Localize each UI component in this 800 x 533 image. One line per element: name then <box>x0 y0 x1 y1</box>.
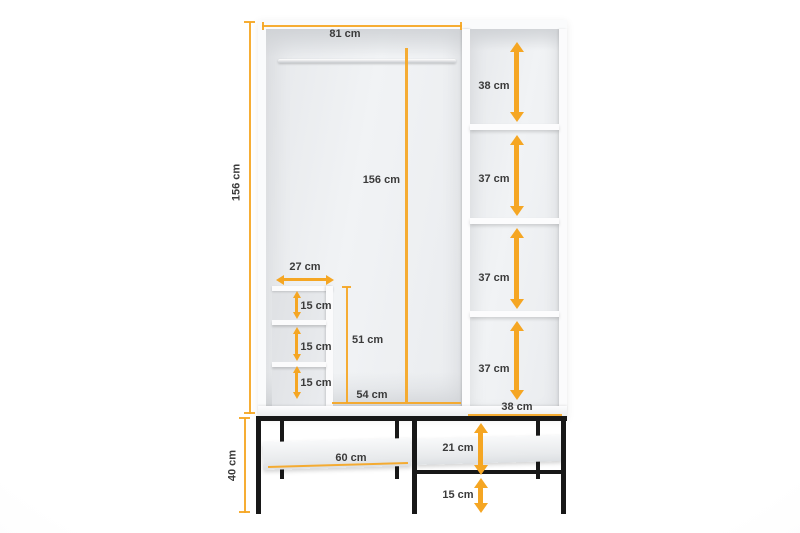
dim-cubby-height-tick-top <box>342 286 351 288</box>
shelf <box>470 218 559 224</box>
dim-floor-width-line <box>332 402 461 404</box>
dim-cubby-gap2-label: 15 cm <box>296 341 336 354</box>
dim-cubby-height-line <box>346 287 348 403</box>
dim-overall-height-label: 156 cm <box>231 152 244 214</box>
dim-right-gap3-label: 37 cm <box>471 272 517 285</box>
dim-interior-height-line <box>405 48 408 402</box>
dim-top-width-label: 81 cm <box>313 28 377 41</box>
center-divider-panel <box>462 29 470 408</box>
dim-top-width-tick-right <box>460 22 462 30</box>
dim-right-gap4-label: 37 cm <box>471 363 517 376</box>
shelf <box>470 311 559 317</box>
dim-overall-height-line <box>249 22 251 414</box>
dim-cubby-height-label: 51 cm <box>352 334 396 347</box>
dim-overall-height-tick-top <box>244 21 255 23</box>
base-crossbar <box>413 470 565 474</box>
dim-top-width-line <box>262 25 462 27</box>
dim-floor-width-label: 54 cm <box>349 389 395 402</box>
dim-base-height-line <box>244 418 246 513</box>
dim-right-col-width-line <box>468 414 562 416</box>
dim-right-gap1-label: 38 cm <box>471 80 517 93</box>
shelf <box>470 124 559 130</box>
dim-cubby-width-label: 27 cm <box>279 261 331 274</box>
dim-base-height-label: 40 cm <box>227 435 240 497</box>
dim-right-gap3-arrow <box>509 228 524 309</box>
dim-cubby-width-arrow <box>276 274 334 285</box>
dim-cubby-gap3-label: 15 cm <box>296 377 336 390</box>
cubby-shelf <box>272 320 326 325</box>
cubby-top-panel <box>272 286 333 291</box>
dim-right-gap2-label: 37 cm <box>471 173 517 186</box>
dim-right-gap4-arrow <box>509 321 524 400</box>
base-leg-front-middle <box>412 416 417 514</box>
dim-cubby-gap1-label: 15 cm <box>296 300 336 313</box>
dim-base-height-tick-top <box>239 417 250 419</box>
dim-right-col-width-label: 38 cm <box>494 401 540 414</box>
base-leg-front-left <box>256 416 261 514</box>
dim-interior-height-label: 156 cm <box>342 174 400 187</box>
right-side-panel <box>559 29 567 412</box>
dim-base-height-tick-bottom <box>239 511 250 513</box>
dim-overall-height-tick-bottom <box>244 412 255 414</box>
clothes-rail <box>278 59 456 63</box>
base-leg-front-right <box>561 416 566 514</box>
dim-base-gap-bottom-label: 15 cm <box>436 489 480 502</box>
dimension-diagram: 156 cm 40 cm 81 cm 156 cm 38 cm 37 cm 37… <box>0 0 800 533</box>
dim-top-width-tick-left <box>262 22 264 30</box>
dim-base-shelf-width-label: 60 cm <box>328 452 374 465</box>
dim-base-gap-top-label: 21 cm <box>436 442 480 455</box>
